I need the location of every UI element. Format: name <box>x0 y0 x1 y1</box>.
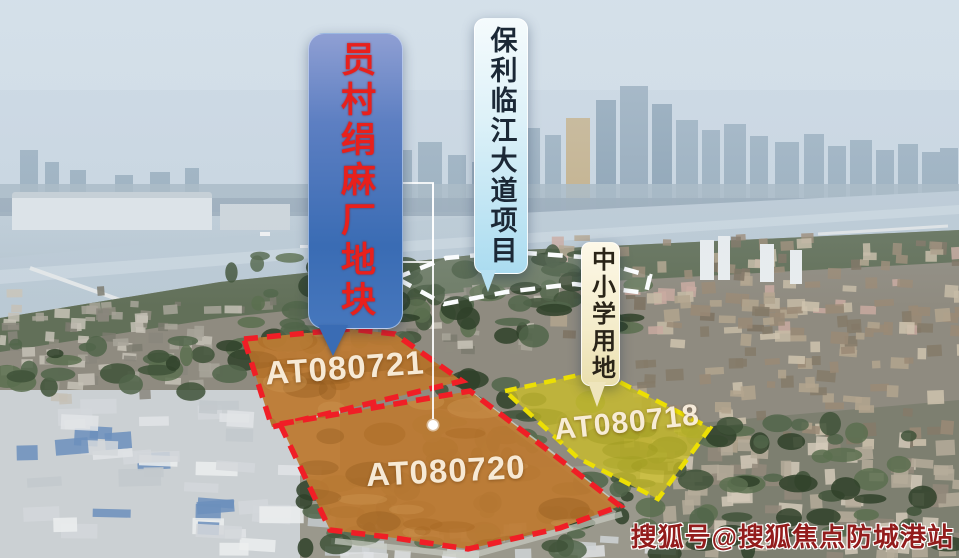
callout-poly-project-pointer <box>480 270 496 292</box>
callout-poly-project-label: 保利临江大道项目 <box>488 26 515 266</box>
callout-factory-site: 员村绢麻厂地块 <box>308 33 403 329</box>
callout-school-land-label: 中小学用地 <box>589 247 613 382</box>
callout-school-land-pointer <box>588 382 606 407</box>
location-dot <box>428 420 438 430</box>
screenshot-root: 员村绢麻厂地块 保利临江大道项目 中小学用地 AT080721 AT080720… <box>0 0 959 558</box>
callout-factory-site-label: 员村绢麻厂地块 <box>338 41 373 321</box>
callout-school-land: 中小学用地 <box>581 242 620 386</box>
callout-poly-project: 保利临江大道项目 <box>474 18 528 274</box>
watermark: 搜狐号@搜狐焦点防城港站 <box>631 517 954 554</box>
